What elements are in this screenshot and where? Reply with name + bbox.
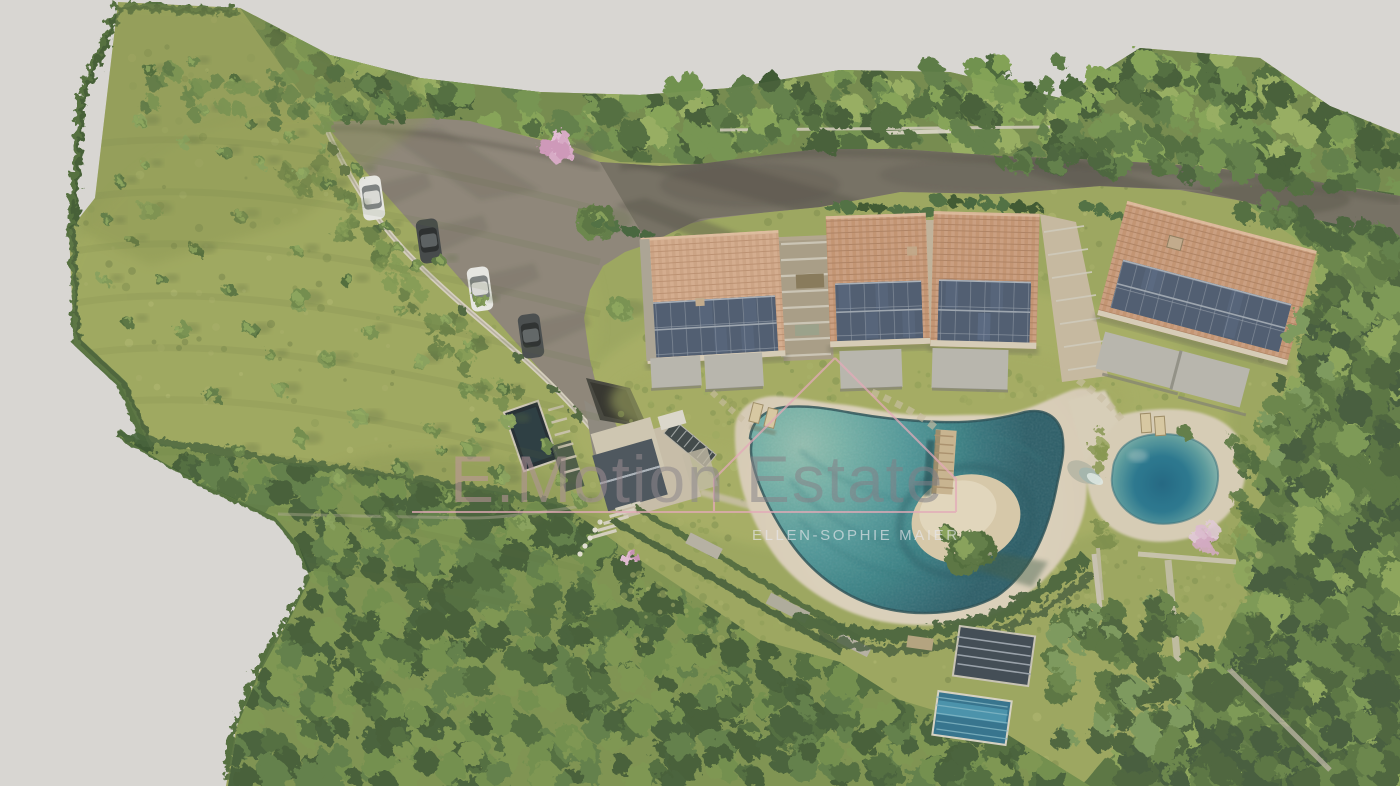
svg-text:E.Motion Estate: E.Motion Estate <box>450 442 944 516</box>
svg-text:ELLEN-SOPHIE MAIER: ELLEN-SOPHIE MAIER <box>752 527 960 544</box>
